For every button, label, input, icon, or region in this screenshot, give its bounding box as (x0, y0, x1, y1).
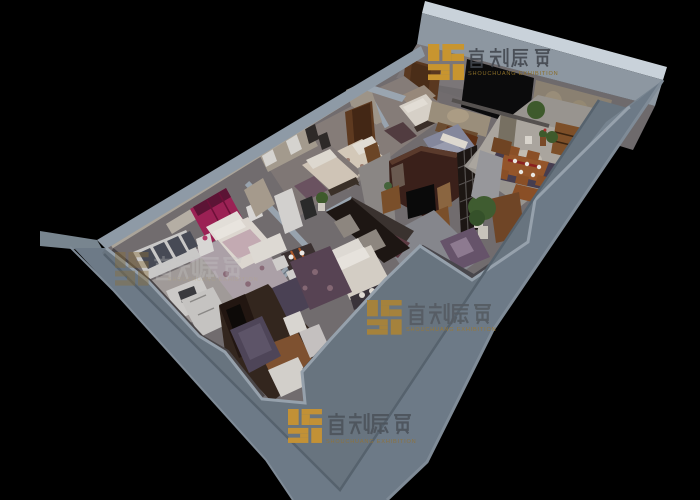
svg-text:SHOUCHUANG EXHIBITION: SHOUCHUANG EXHIBITION (406, 327, 496, 333)
svg-text:SHOUCHUANG EXHIBITION: SHOUCHUANG EXHIBITION (468, 71, 558, 77)
svg-text:SHOUCHUANG EXHIBITION: SHOUCHUANG EXHIBITION (326, 439, 416, 445)
svg-text:SHOUCHUANG EXHIBITION: SHOUCHUANG EXHIBITION (168, 277, 258, 283)
